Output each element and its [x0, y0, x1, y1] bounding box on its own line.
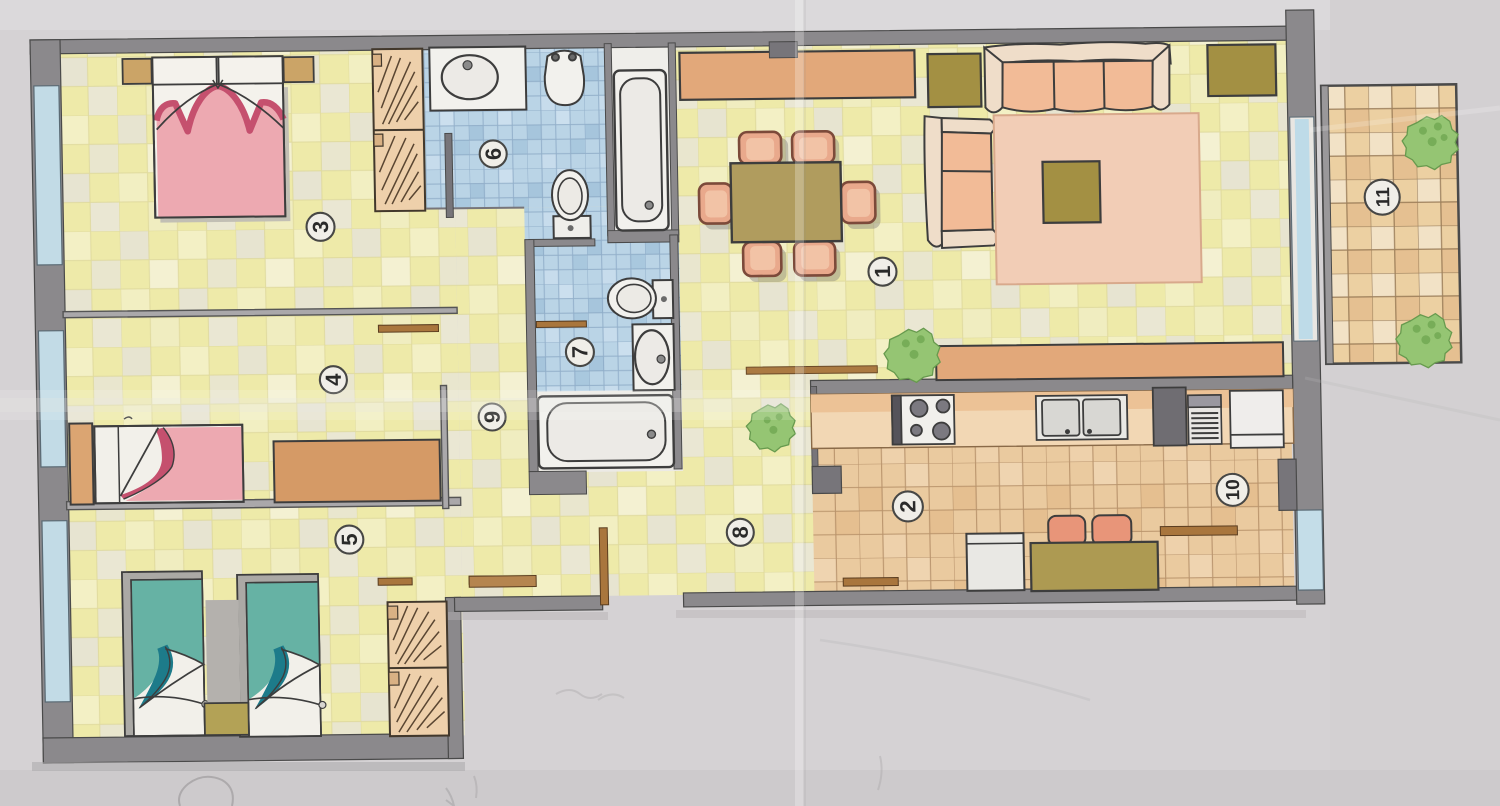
- svg-text:10: 10: [1223, 479, 1244, 500]
- svg-text:11: 11: [1373, 187, 1394, 208]
- svg-text:4: 4: [321, 373, 346, 386]
- svg-text:1: 1: [870, 265, 895, 278]
- svg-text:6: 6: [481, 148, 506, 161]
- svg-text:8: 8: [728, 526, 753, 539]
- svg-text:3: 3: [308, 221, 333, 234]
- svg-text:5: 5: [337, 533, 362, 546]
- svg-text:7: 7: [567, 346, 592, 359]
- svg-text:2: 2: [895, 500, 920, 513]
